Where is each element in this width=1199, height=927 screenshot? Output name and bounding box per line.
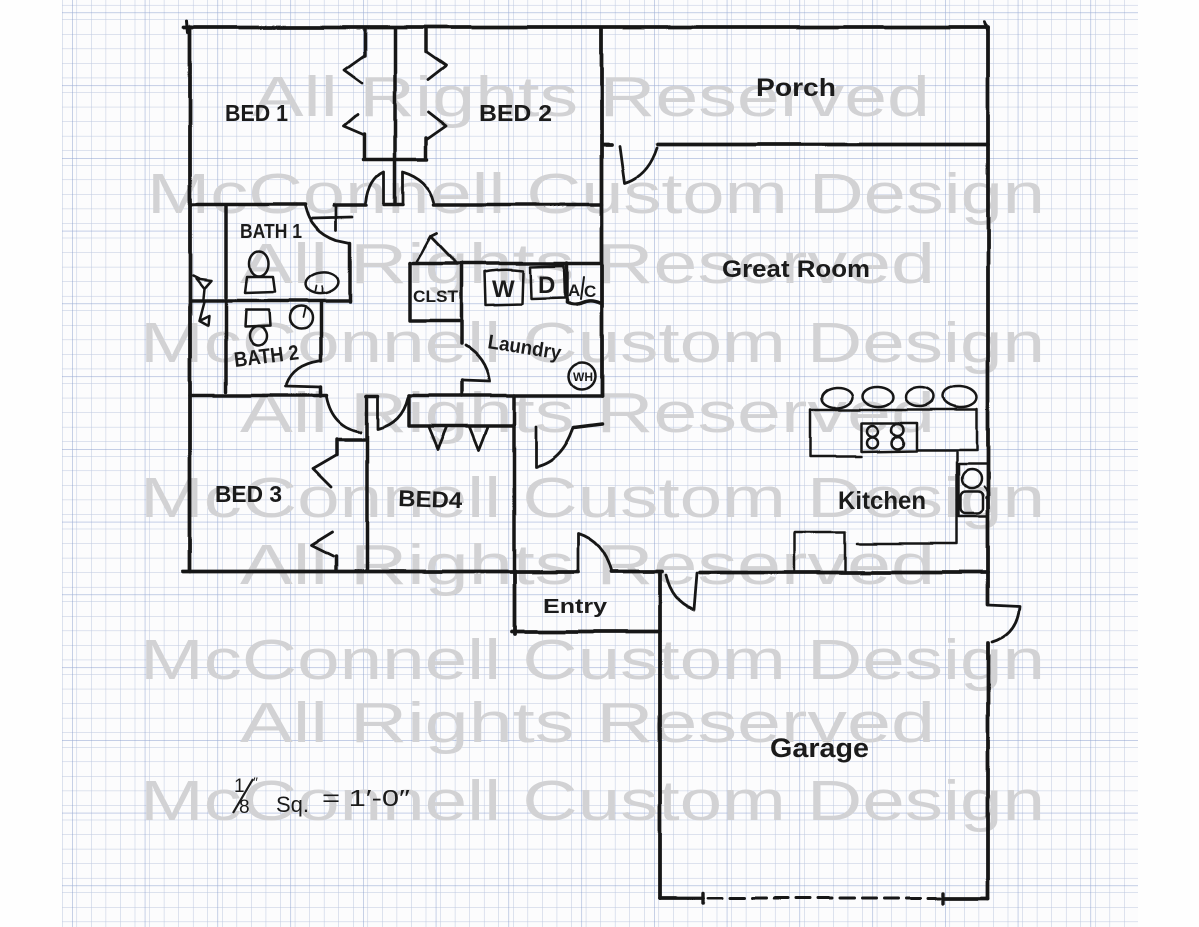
svg-text:Garage: Garage [770, 733, 869, 763]
svg-text:A: A [568, 281, 580, 300]
svg-text:All Rights Reserved: All Rights Reserved [240, 533, 935, 597]
svg-text:BED 3: BED 3 [215, 481, 282, 507]
svg-text:McConnell Custom Design: McConnell Custom Design [147, 162, 1045, 226]
svg-text:BED 1: BED 1 [225, 100, 288, 126]
svg-text:CLST: CLST [413, 287, 459, 306]
svg-text:″: ″ [253, 774, 258, 790]
svg-text:C: C [584, 282, 596, 301]
svg-text:BED4: BED4 [398, 485, 463, 513]
svg-text:WH: WH [573, 370, 593, 384]
svg-text:BATH 1: BATH 1 [240, 221, 302, 243]
svg-text:McConnell Custom Design: McConnell Custom Design [140, 628, 1045, 692]
svg-text:All Rights Reserved: All Rights Reserved [240, 381, 935, 445]
svg-text:W: W [492, 276, 515, 303]
svg-text:Porch: Porch [756, 74, 836, 102]
svg-text:Entry: Entry [543, 596, 608, 618]
svg-text:BED 2: BED 2 [479, 100, 552, 126]
svg-text:D: D [538, 272, 555, 299]
svg-text:Kitchen: Kitchen [838, 487, 926, 515]
svg-text:= 1′-0″: = 1′-0″ [322, 785, 410, 811]
svg-text:Sq.: Sq. [276, 792, 309, 817]
svg-text:Great Room: Great Room [722, 256, 870, 283]
